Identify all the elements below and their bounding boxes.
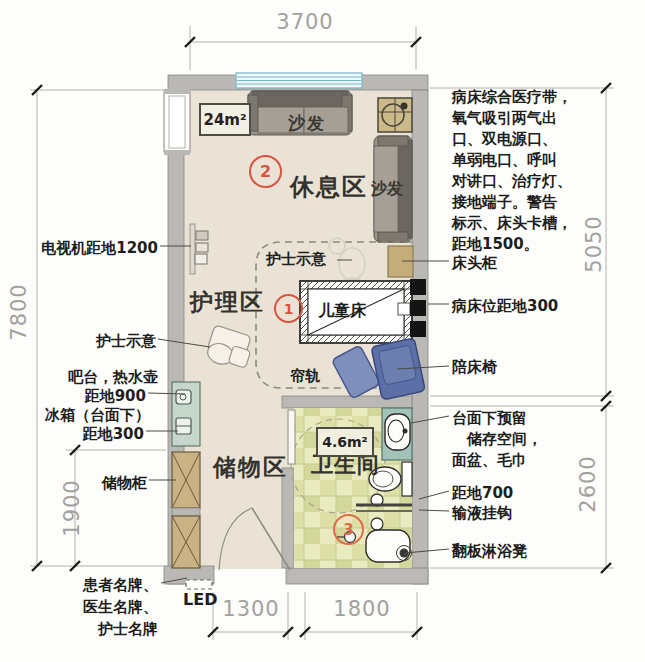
label-rest-area: 休息区 <box>290 171 368 203</box>
ann-iv-hook: 输液挂钩 <box>452 503 512 524</box>
ann-bedside-table: 床头柜 <box>452 253 497 274</box>
room-area-box: 24m² <box>199 103 251 136</box>
label-sofa-right: 沙发 <box>371 178 403 200</box>
ann-shower-seat: 翻板淋浴凳 <box>452 541 527 562</box>
shower-seat <box>366 530 412 562</box>
ann-nurse-sign: 护士示意 <box>60 331 156 352</box>
dim-right-lower: 2600 <box>576 452 600 516</box>
dim-bottom-right: 1800 <box>324 597 400 621</box>
ann-bar-kettle: 吧台，热水壶 <box>28 367 158 388</box>
ann-fridge-height: 距地300 <box>28 424 144 445</box>
ann-counter-note: 台面下预留 储存空间， 面盆、毛巾 <box>452 408 562 471</box>
window <box>236 73 362 88</box>
dim-top: 3700 <box>270 10 340 34</box>
bar-counter <box>172 382 200 446</box>
medical-panel <box>410 279 426 337</box>
label-nursing-area: 护理区 <box>190 287 265 318</box>
ann-bar-height: 距地900 <box>30 386 146 407</box>
ann-tv: 电视机距地1200 <box>28 238 158 259</box>
storage-cabinets <box>172 452 200 568</box>
floorplan-page: 3700 7800 1900 5050 2600 1300 1800 休息区 护… <box>0 0 645 662</box>
led-strip <box>186 580 212 589</box>
ann-fridge: 冰箱（台面下） <box>24 405 150 426</box>
zone-marker-2: 2 <box>249 155 282 188</box>
ann-bed-height: 病床位距地300 <box>452 296 558 317</box>
dim-bottom-left: 1300 <box>213 597 289 621</box>
label-nurse-sign-plan: 护士示意 <box>266 249 326 270</box>
label-curtain-rail: 帘轨 <box>290 366 320 387</box>
corner-table <box>378 98 412 132</box>
label-children-bed: 儿童床 <box>318 300 366 322</box>
left-wall-niche <box>164 89 190 155</box>
label-storage-area: 储物区 <box>213 452 288 483</box>
ann-medical-band: 病床综合医疗带， 氧气吸引两气出 口、双电源口、 单弱电口、呼叫 对讲口、治疗灯… <box>452 87 572 255</box>
zone-marker-1: 1 <box>274 294 303 323</box>
ann-led: LED <box>183 589 217 611</box>
ann-storage-cabinet: 储物柜 <box>39 473 147 494</box>
ann-name-plates: 患者名牌、 医生名牌、 护士名牌 <box>40 575 158 640</box>
ann-companion-chair: 陪床椅 <box>452 357 497 378</box>
dim-left: 7800 <box>7 280 31 344</box>
dim-right-upper: 5050 <box>582 212 606 276</box>
label-sofa-top: 沙发 <box>288 112 326 136</box>
zone-marker-3: 3 <box>333 514 364 545</box>
bathroom-area-box: 4.6m² <box>316 427 374 457</box>
washbasin <box>382 408 412 460</box>
ann-hook-height: 距地700 <box>452 483 513 504</box>
